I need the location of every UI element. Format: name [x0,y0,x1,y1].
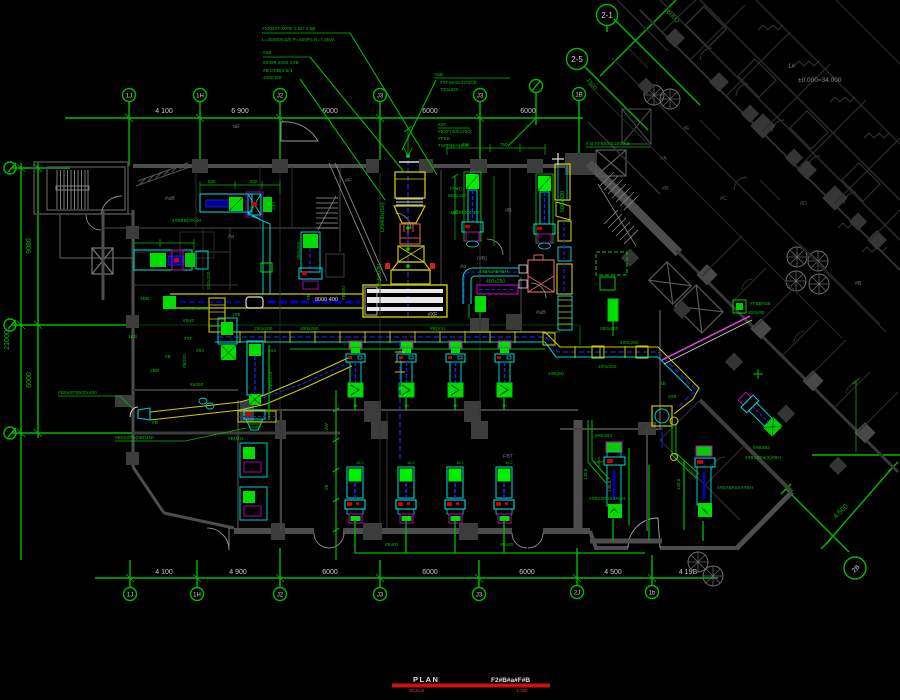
svg-text:750: 750 [500,142,508,147]
svg-text:#B: #B [165,354,171,360]
svg-text:4#BBBKXMH: 4#BBBKXMH [450,210,479,216]
svg-text:#XF: #XF [184,336,193,342]
svg-text:#FKB: #FKB [438,136,450,142]
svg-text:DN400x(50): DN400x(50) [380,202,386,232]
svg-text:6000: 6000 [519,569,535,576]
svg-text:4 500: 4 500 [604,569,622,576]
svg-text:1B: 1B [502,403,507,408]
svg-text:600x320: 600x320 [448,193,467,199]
svg-text:#BXF(200x200): #BXF(200x200) [438,129,472,135]
svg-text:#B400: #B400 [500,542,514,547]
svg-text:250x200: 250x200 [254,326,273,332]
svg-text:#B DXB(3.5/4: #B DXB(3.5/4 [263,68,293,74]
svg-text:140.8: 140.8 [607,480,612,492]
svg-text:#XKBXFJXFB-2.5D-4.5B: #XKBXFJXFB-2.5D-4.5B [262,26,315,32]
svg-text:F2#B#a#F#B: F2#B#a#F#B [491,677,530,684]
svg-text:4#B#a#B#BH: 4#B#a#B#BH [479,269,509,275]
svg-text:1#: 1# [788,64,795,70]
svg-text:2J: 2J [574,591,580,597]
svg-text:4000 KB: 4000 KB [263,75,281,81]
svg-text:J3: J3 [377,94,384,100]
svg-text:1#B: 1#B [232,312,241,318]
svg-text:400x250: 400x250 [486,279,505,285]
svg-text:6 900: 6 900 [231,108,249,115]
svg-text:320x200: 320x200 [206,271,212,290]
svg-text:J2: J2 [277,593,284,599]
svg-text:8000 400: 8000 400 [315,297,338,303]
svg-text:#XF(600x320)KB: #XF(600x320)KB [440,80,477,86]
svg-text:#XF: #XF [428,312,437,318]
svg-text:250x200: 250x200 [296,241,302,260]
svg-text:L=25000m3/h P=450Pa N=7.5kW: L=25000m3/h P=450Pa N=7.5kW [262,37,334,43]
svg-text:2-5: 2-5 [571,55,583,64]
svg-text:#B: #B [855,281,862,287]
svg-text:#aB: #aB [165,196,175,202]
svg-text:4#BBB(OK)M: 4#BBB(OK)M [172,218,201,224]
svg-text:300x#B: 300x#B [748,310,764,316]
svg-text:#aF: #aF [438,122,446,128]
svg-text:#aB: #aB [536,310,546,316]
svg-text:SCALE: SCALE [409,688,424,693]
svg-text:5#B4B3: 5#B4B3 [595,433,612,439]
svg-text:50499 4000 1KB: 50499 4000 1KB [263,60,299,66]
svg-text:(#B): (#B) [477,256,488,262]
svg-text:(#aB): (#aB) [450,186,462,192]
svg-text:200: 200 [271,202,277,210]
svg-text:#D: #D [800,201,807,207]
svg-text:250x200: 250x200 [600,326,619,332]
svg-text:2B: 2B [324,484,329,490]
svg-text:#B400: #B400 [385,542,399,547]
svg-text:1H: 1H [196,94,204,100]
svg-text:700x320: 700x320 [440,87,459,93]
svg-text:4 900: 4 900 [229,569,247,576]
svg-text:#FBB#aB: #FBB#aB [750,301,771,307]
svg-text:3W: 3W [324,422,329,430]
svg-text:4#BXB#aXX#BH: 4#BXB#aXX#BH [717,485,754,491]
svg-text:1:100: 1:100 [516,688,528,693]
svg-text:1B: 1B [575,93,582,99]
svg-text:#B#aXFB500x400: #B#aXFB500x400 [58,390,97,396]
svg-text:J3: J3 [377,593,384,599]
svg-text:#B: #B [505,208,512,214]
svg-text:1B: 1B [453,403,458,408]
svg-text:4 19B: 4 19B [679,569,698,576]
svg-text:#B: #B [662,186,669,192]
svg-text:FBT: FBT [503,454,514,460]
svg-text:#aB: #aB [263,50,272,56]
svg-text:1J: 1J [127,593,133,599]
svg-text:9080: 9080 [26,238,33,254]
svg-text:1BB: 1BB [128,334,137,340]
svg-text:#F: #F [345,178,352,184]
svg-text:#B: #B [306,294,312,300]
svg-text:#B(XX): #B(XX) [430,326,446,332]
svg-text:4B: 4B [660,381,666,387]
svg-text:6000: 6000 [322,569,338,576]
svg-text:400x250: 400x250 [620,340,639,346]
svg-text:240x120: 240x120 [268,371,274,390]
svg-text:18.2: 18.2 [505,460,514,465]
svg-text:#a: #a [460,264,467,270]
svg-text:4#BXB#a(X)#BH: 4#BXB#a(X)#BH [745,455,782,461]
svg-text:1J: 1J [126,94,132,100]
svg-text:#a: #a [228,234,235,240]
svg-text:18.2: 18.2 [456,460,465,465]
svg-text:5#B4B3: 5#B4B3 [753,445,770,451]
svg-text:#E: #E [683,126,690,132]
svg-text:4#BBB#a400: 4#BBB#a400 [180,306,209,312]
svg-text:A6B: A6B [434,72,443,78]
svg-text:#B40: #B40 [183,318,195,324]
svg-text:140.8: 140.8 [676,478,681,490]
svg-text:140.8: 140.8 [583,468,588,480]
svg-text:40B: 40B [668,394,677,400]
svg-text:aE: aE [233,124,240,130]
svg-text:J3: J3 [476,593,483,599]
svg-text:6000: 6000 [422,569,438,576]
svg-text:6000: 6000 [26,372,33,388]
svg-text:1B: 1B [353,403,358,408]
svg-text:#B: #B [152,420,158,426]
svg-text:J2: J2 [277,94,284,100]
svg-text:1B: 1B [404,403,409,408]
svg-text:18.2: 18.2 [407,460,416,465]
svg-text:2-1: 2-1 [601,11,613,20]
svg-text:#B(M)4: #B(M)4 [228,436,244,442]
svg-text:21000: 21000 [4,330,11,350]
svg-text:4#B(M): 4#B(M) [548,371,564,377]
svg-text:4 100: 4 100 [155,569,173,576]
svg-text:6000: 6000 [520,108,536,115]
svg-text:250: 250 [196,348,204,354]
svg-text:500: 500 [208,179,216,184]
svg-text:400x250: 400x250 [300,326,319,332]
svg-text:#B#aXFB(MB)400: #B#aXFB(MB)400 [115,435,154,441]
svg-text:4BB: 4BB [140,296,149,302]
svg-text:#C: #C [720,196,727,202]
svg-text:#a4: #a4 [268,348,276,354]
svg-text:400x250: 400x250 [598,364,617,370]
svg-text:6000: 6000 [422,108,438,115]
svg-text:±0.000=34.000: ±0.000=34.000 [798,77,842,84]
svg-text:#B500: #B500 [341,286,347,300]
svg-text:2BB: 2BB [150,368,159,374]
svg-text:4 100: 4 100 [155,108,173,115]
svg-text:4#BXB#aXX#BH: 4#BXB#aXX#BH [589,496,626,502]
svg-text:TuFFBKA(400: TuFFBKA(400 [438,143,469,149]
svg-text:18.2: 18.2 [356,460,365,465]
svg-text:PLAN: PLAN [413,675,439,684]
svg-text:#a250: #a250 [190,382,204,388]
svg-text:1b: 1b [649,591,656,597]
svg-text:#B200: #B200 [182,354,188,368]
svg-text:1H: 1H [193,593,201,599]
svg-text:500: 500 [250,179,258,184]
svg-text:4 B XFB500x250 KB: 4 B XFB500x250 KB [586,141,630,147]
svg-text:500x320: 500x320 [560,191,566,212]
svg-text:J3: J3 [477,94,484,100]
